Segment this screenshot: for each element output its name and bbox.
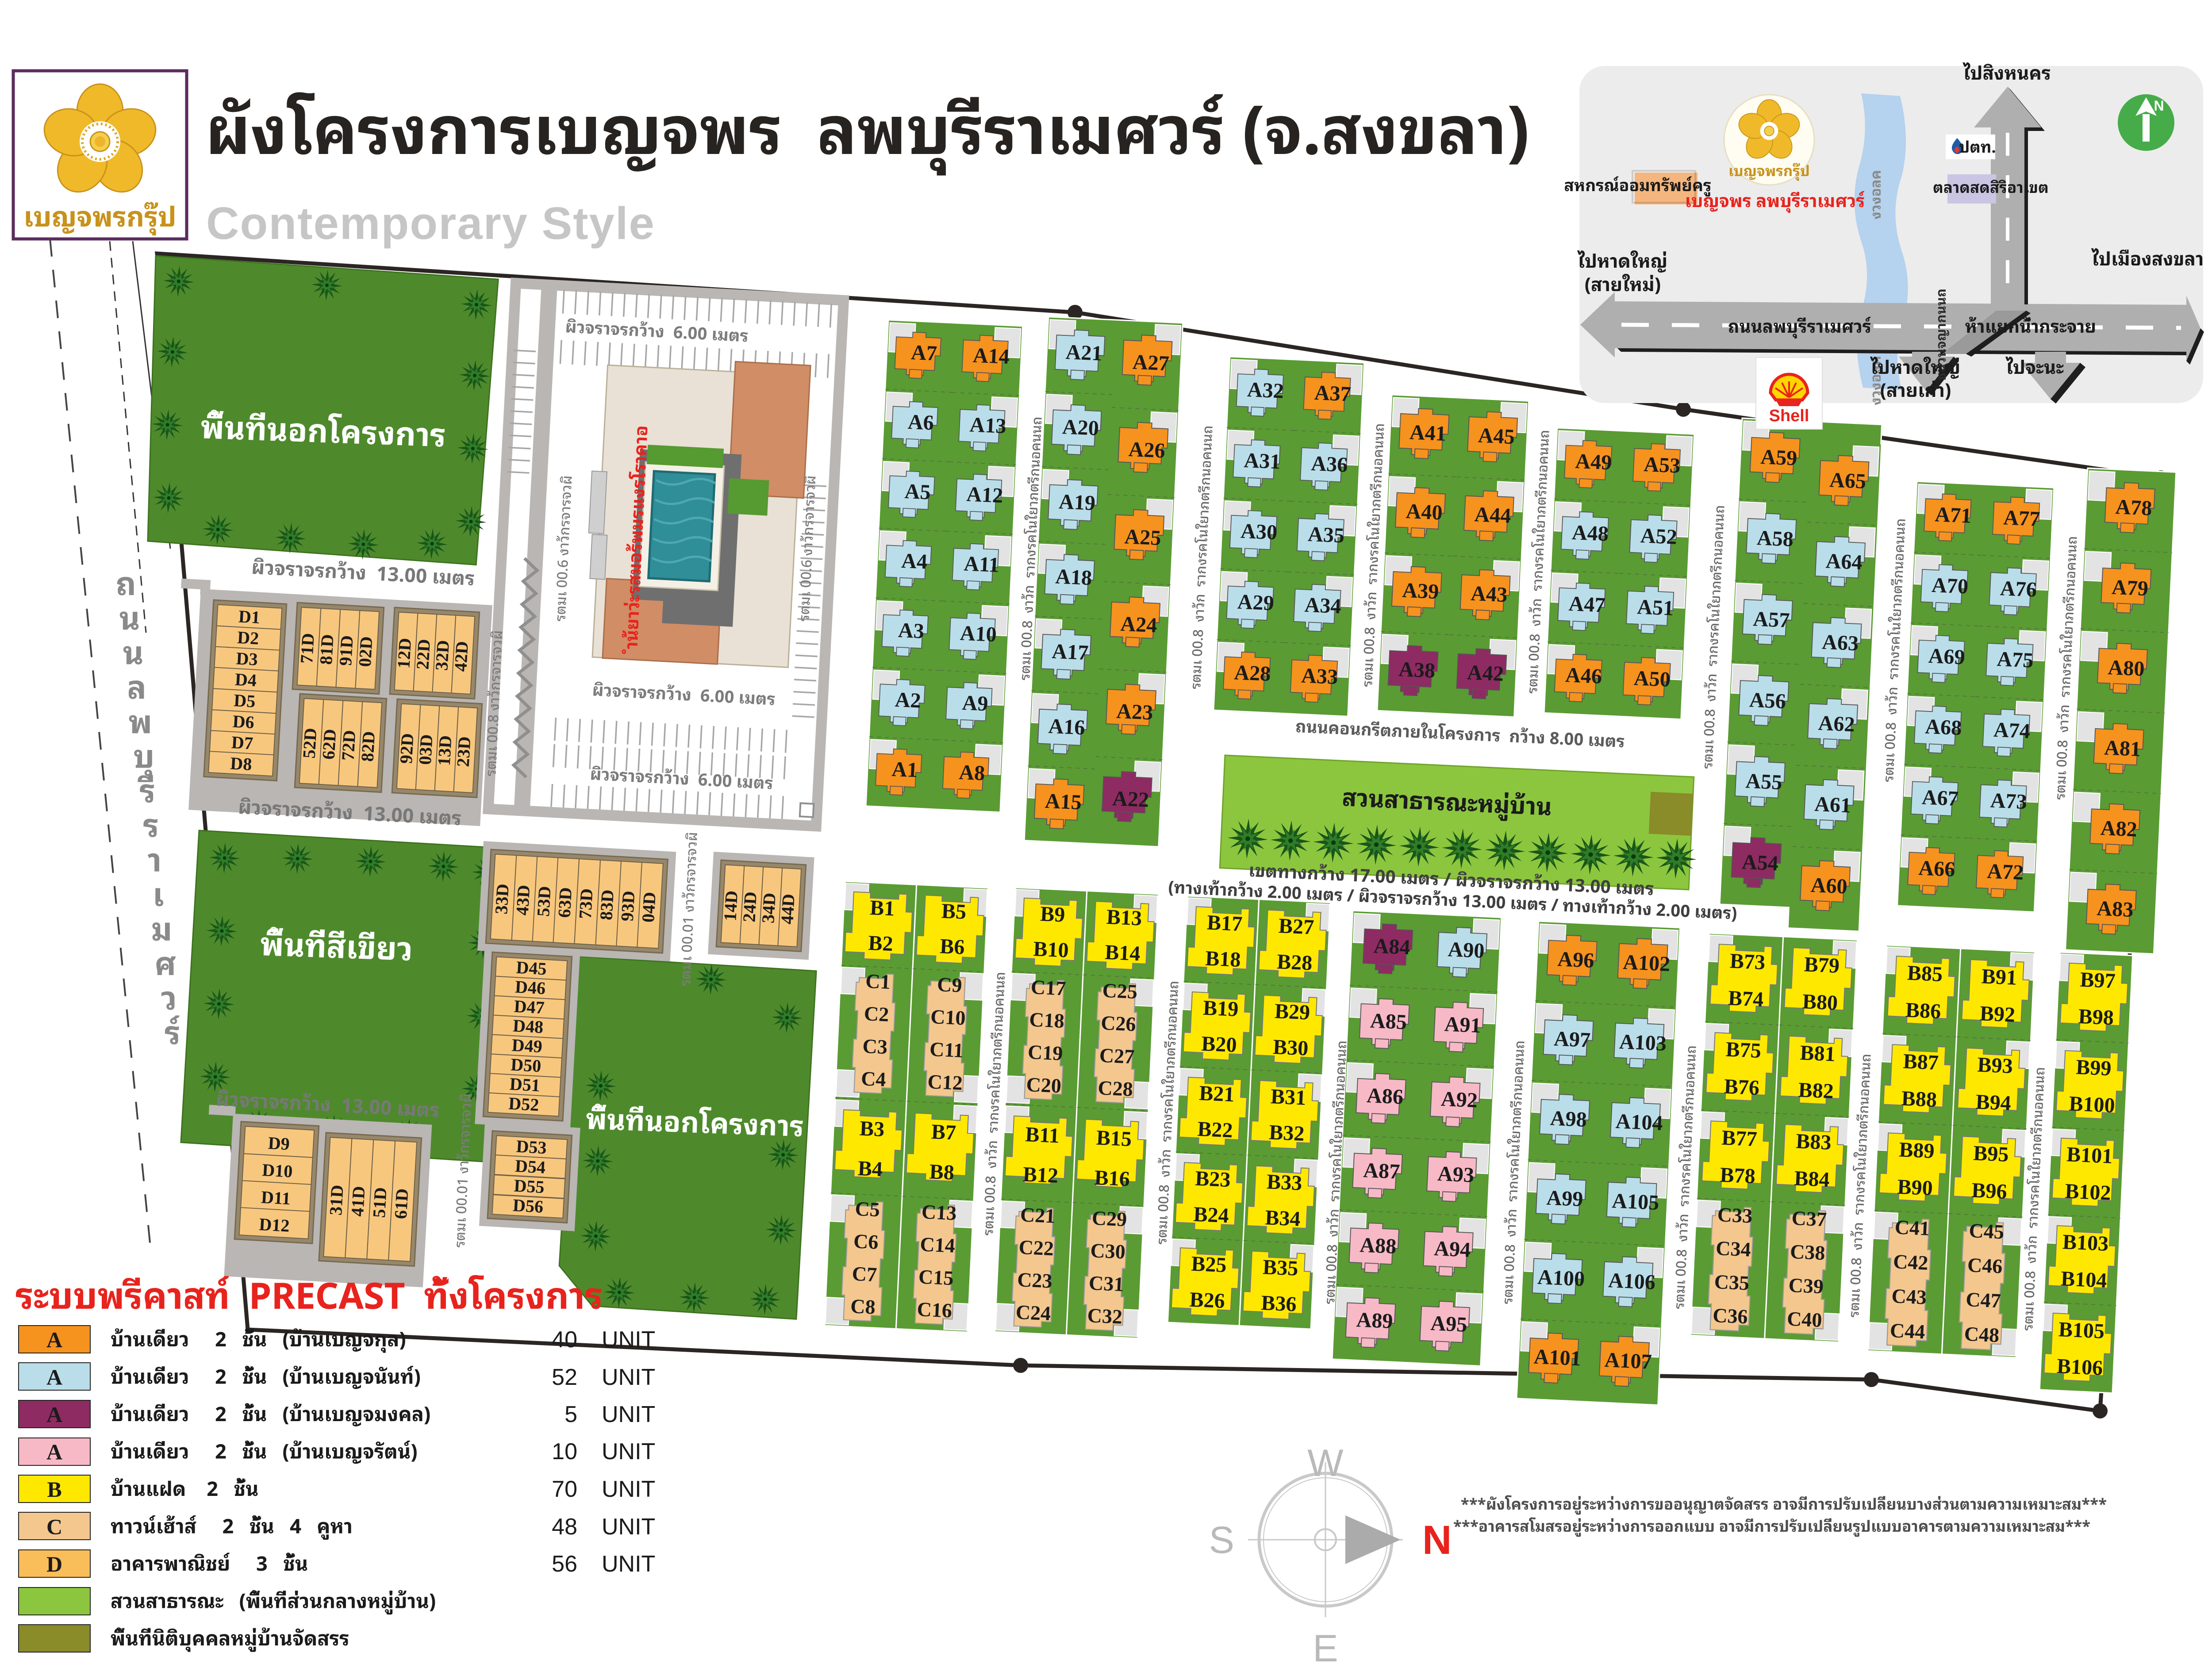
svg-text:C46: C46 [1967, 1253, 2003, 1278]
svg-text:C17: C17 [1030, 976, 1067, 1000]
svg-text:A4: A4 [901, 549, 928, 574]
svg-text:B3: B3 [859, 1117, 885, 1142]
svg-text:C28: C28 [1098, 1076, 1134, 1101]
svg-text:A12: A12 [966, 482, 1003, 507]
svg-text:B85: B85 [1907, 961, 1943, 986]
svg-text:UNIT: UNIT [602, 1551, 655, 1577]
svg-text:48: 48 [552, 1514, 577, 1540]
svg-text:D49: D49 [511, 1035, 543, 1057]
svg-text:62D: 62D [319, 728, 340, 760]
svg-text:D3: D3 [236, 648, 258, 669]
svg-text:C35: C35 [1714, 1270, 1750, 1295]
svg-text:C42: C42 [1893, 1250, 1929, 1274]
svg-text:N: N [1422, 1518, 1452, 1563]
svg-text:B88: B88 [1901, 1087, 1937, 1112]
svg-text:B106: B106 [2056, 1354, 2103, 1380]
svg-text:A7: A7 [910, 341, 937, 365]
svg-text:A2: A2 [895, 688, 922, 713]
svg-text:B28: B28 [1276, 950, 1313, 975]
svg-text:A20: A20 [1062, 415, 1099, 440]
svg-text:C4: C4 [860, 1067, 887, 1091]
svg-text:A23: A23 [1116, 700, 1153, 725]
svg-text:A85: A85 [1370, 1009, 1407, 1034]
svg-text:B83: B83 [1795, 1130, 1832, 1155]
svg-text:A62: A62 [1818, 711, 1855, 737]
svg-text:A65: A65 [1829, 468, 1866, 493]
svg-text:B74: B74 [1728, 986, 1764, 1011]
svg-text:A28: A28 [1233, 661, 1271, 686]
svg-text:A67: A67 [1921, 785, 1959, 811]
svg-text:A98: A98 [1550, 1107, 1587, 1132]
svg-text:C1: C1 [865, 969, 891, 993]
svg-text:14D: 14D [720, 890, 741, 922]
svg-text:C40: C40 [1786, 1307, 1823, 1332]
svg-text:B95: B95 [1973, 1142, 2009, 1167]
svg-text:B91: B91 [1981, 965, 2017, 990]
svg-text:A93: A93 [1437, 1162, 1475, 1187]
svg-text:C37: C37 [1791, 1207, 1828, 1231]
svg-text:A104: A104 [1615, 1110, 1663, 1135]
svg-text:B87: B87 [1903, 1049, 1939, 1075]
svg-text:B14: B14 [1104, 941, 1141, 966]
svg-text:C47: C47 [1965, 1288, 2001, 1312]
svg-text:A96: A96 [1557, 947, 1595, 972]
svg-text:A1: A1 [891, 757, 918, 782]
svg-text:C3: C3 [862, 1034, 888, 1058]
svg-text:A5: A5 [904, 480, 931, 504]
svg-text:UNIT: UNIT [602, 1476, 655, 1502]
svg-text:B6: B6 [939, 934, 965, 959]
svg-text:A38: A38 [1398, 657, 1436, 683]
svg-text:B25: B25 [1190, 1252, 1227, 1277]
svg-text:52D: 52D [299, 727, 321, 759]
svg-text:C48: C48 [1964, 1322, 2000, 1347]
svg-text:42D: 42D [450, 641, 472, 672]
svg-text:C7: C7 [852, 1262, 878, 1286]
svg-text:D45: D45 [515, 957, 547, 979]
svg-text:C33: C33 [1717, 1203, 1753, 1227]
svg-text:A83: A83 [2096, 896, 2134, 922]
svg-text:A17: A17 [1051, 639, 1089, 665]
svg-text:A78: A78 [2115, 495, 2152, 520]
svg-text:A42: A42 [1467, 661, 1504, 686]
svg-text:A27: A27 [1132, 350, 1170, 376]
svg-text:B32: B32 [1268, 1121, 1305, 1146]
svg-text:A92: A92 [1440, 1087, 1478, 1112]
svg-text:B5: B5 [941, 899, 967, 924]
svg-text:31D: 31D [326, 1184, 347, 1216]
svg-text:A39: A39 [1402, 578, 1440, 603]
svg-text:A95: A95 [1430, 1311, 1468, 1337]
svg-text:C41: C41 [1894, 1215, 1931, 1240]
svg-text:5: 5 [565, 1402, 577, 1427]
svg-text:B10: B10 [1033, 937, 1069, 962]
svg-text:A106: A106 [1608, 1268, 1656, 1294]
svg-text:A63: A63 [1821, 630, 1859, 655]
svg-text:A105: A105 [1611, 1189, 1659, 1215]
svg-text:12D: 12D [393, 638, 415, 669]
svg-text:A6: A6 [907, 410, 934, 435]
svg-text:B100: B100 [2068, 1092, 2115, 1118]
svg-text:A34: A34 [1304, 593, 1342, 618]
svg-text:C24: C24 [1015, 1301, 1052, 1325]
svg-text:A60: A60 [1810, 873, 1848, 899]
svg-text:B17: B17 [1206, 911, 1243, 936]
svg-text:A97: A97 [1553, 1027, 1591, 1052]
svg-text:B11: B11 [1025, 1122, 1060, 1148]
svg-text:53D: 53D [533, 885, 555, 917]
svg-text:Contemporary Style: Contemporary Style [206, 198, 655, 249]
svg-text:D1: D1 [238, 606, 261, 627]
svg-text:A36: A36 [1310, 452, 1348, 477]
svg-text:34D: 34D [758, 892, 780, 923]
svg-text:A35: A35 [1307, 523, 1345, 548]
svg-text:D46: D46 [515, 976, 546, 998]
svg-text:B77: B77 [1721, 1126, 1757, 1151]
svg-text:03D: 03D [415, 734, 437, 765]
svg-text:C14: C14 [919, 1233, 956, 1257]
svg-text:A94: A94 [1433, 1237, 1471, 1262]
svg-text:D50: D50 [510, 1054, 541, 1076]
svg-text:A33: A33 [1301, 664, 1338, 689]
svg-text:A18: A18 [1055, 565, 1092, 590]
svg-text:A11: A11 [963, 552, 999, 577]
svg-text:B12: B12 [1022, 1163, 1059, 1188]
svg-text:43D: 43D [512, 884, 534, 916]
svg-text:B22: B22 [1197, 1117, 1233, 1142]
svg-text:B27: B27 [1278, 914, 1314, 939]
svg-text:D47: D47 [514, 996, 545, 1018]
svg-text:B34: B34 [1264, 1206, 1301, 1231]
svg-text:A75: A75 [1997, 647, 2034, 673]
svg-text:A79: A79 [2111, 575, 2149, 600]
svg-text:D: D [46, 1552, 62, 1576]
svg-text:B35: B35 [1262, 1255, 1298, 1280]
svg-text:B101: B101 [2066, 1142, 2113, 1168]
svg-text:A76: A76 [2000, 577, 2037, 602]
svg-text:91D: 91D [335, 635, 357, 666]
svg-text:D7: D7 [231, 732, 253, 753]
svg-text:A: A [46, 1327, 62, 1352]
svg-text:C11: C11 [929, 1038, 964, 1061]
svg-text:B76: B76 [1724, 1075, 1760, 1100]
svg-text:C8: C8 [850, 1295, 876, 1318]
svg-text:C39: C39 [1788, 1274, 1824, 1298]
svg-text:A64: A64 [1825, 549, 1863, 574]
svg-text:22D: 22D [412, 638, 434, 670]
svg-text:56: 56 [552, 1551, 577, 1577]
svg-text:D11: D11 [261, 1187, 291, 1209]
svg-text:B94: B94 [1975, 1090, 2012, 1115]
svg-text:A77: A77 [2003, 506, 2040, 531]
svg-text:C20: C20 [1026, 1073, 1062, 1097]
svg-text:B26: B26 [1189, 1288, 1225, 1313]
svg-text:UNIT: UNIT [602, 1327, 655, 1353]
svg-text:B93: B93 [1977, 1053, 2013, 1078]
svg-text:B9: B9 [1040, 902, 1065, 927]
svg-text:B105: B105 [2058, 1318, 2105, 1343]
svg-text:B30: B30 [1272, 1035, 1309, 1061]
svg-text:A16: A16 [1048, 715, 1086, 740]
svg-text:A37: A37 [1314, 381, 1352, 406]
svg-text:A68: A68 [1924, 715, 1962, 740]
svg-text:A13: A13 [969, 413, 1007, 438]
svg-text:A102: A102 [1622, 950, 1671, 976]
svg-text:32D: 32D [431, 639, 453, 671]
svg-text:A74: A74 [1993, 718, 2031, 743]
svg-text:C: C [46, 1514, 62, 1539]
svg-text:C43: C43 [1891, 1284, 1928, 1309]
svg-text:52: 52 [552, 1365, 577, 1390]
svg-text:81D: 81D [316, 634, 338, 665]
svg-text:D4: D4 [234, 669, 257, 691]
svg-text:A19: A19 [1058, 490, 1096, 515]
svg-text:D54: D54 [515, 1156, 546, 1177]
svg-text:A82: A82 [2100, 816, 2138, 842]
svg-text:C5: C5 [855, 1197, 881, 1221]
svg-text:A100: A100 [1537, 1265, 1585, 1291]
svg-text:61D: 61D [391, 1188, 412, 1219]
svg-text:A61: A61 [1814, 792, 1851, 818]
svg-text:B84: B84 [1793, 1167, 1830, 1192]
svg-text:71D: 71D [296, 633, 318, 664]
svg-text:A57: A57 [1752, 607, 1790, 632]
svg-text:B99: B99 [2075, 1055, 2112, 1080]
svg-text:B: B [47, 1477, 61, 1502]
svg-text:B92: B92 [1979, 1002, 2016, 1027]
svg-text:C2: C2 [864, 1002, 890, 1026]
svg-text:C18: C18 [1029, 1008, 1065, 1032]
svg-text:B36: B36 [1260, 1291, 1297, 1316]
svg-text:A24: A24 [1120, 612, 1158, 637]
svg-text:A31: A31 [1244, 449, 1281, 474]
svg-text:04D: 04D [638, 892, 660, 923]
svg-text:A86: A86 [1366, 1084, 1404, 1109]
svg-text:A10: A10 [960, 621, 997, 646]
svg-text:D52: D52 [508, 1093, 539, 1115]
svg-text:A59: A59 [1760, 445, 1797, 470]
svg-text:B21: B21 [1198, 1081, 1235, 1107]
svg-text:A40: A40 [1406, 500, 1443, 525]
svg-text:B79: B79 [1804, 953, 1840, 978]
svg-text:A81: A81 [2104, 736, 2141, 761]
svg-text:A103: A103 [1619, 1030, 1667, 1056]
svg-text:W: W [1307, 1442, 1343, 1484]
svg-text:A84: A84 [1373, 934, 1411, 959]
svg-text:41D: 41D [347, 1185, 369, 1217]
svg-text:C10: C10 [930, 1005, 966, 1030]
svg-text:UNIT: UNIT [602, 1439, 655, 1464]
svg-text:C36: C36 [1712, 1304, 1748, 1328]
svg-text:C45: C45 [1969, 1219, 2005, 1243]
svg-text:A45: A45 [1478, 423, 1515, 449]
svg-text:B104: B104 [2060, 1267, 2107, 1292]
svg-text:Shell: Shell [1769, 407, 1809, 425]
svg-text:33D: 33D [491, 883, 513, 915]
svg-text:A107: A107 [1604, 1348, 1652, 1374]
svg-text:92D: 92D [396, 733, 418, 764]
svg-text:A90: A90 [1448, 938, 1485, 963]
svg-text:B18: B18 [1205, 946, 1241, 972]
svg-text:B16: B16 [1094, 1166, 1130, 1191]
svg-text:A73: A73 [1990, 788, 2028, 814]
svg-text:A80: A80 [2108, 656, 2145, 681]
svg-text:A53: A53 [1643, 453, 1681, 478]
svg-text:40: 40 [552, 1327, 577, 1353]
svg-text:D9: D9 [268, 1133, 290, 1154]
svg-text:93D: 93D [617, 890, 639, 922]
svg-text:B13: B13 [1106, 905, 1142, 930]
svg-text:A88: A88 [1359, 1233, 1397, 1258]
svg-text:C38: C38 [1790, 1240, 1826, 1265]
svg-text:A32: A32 [1247, 378, 1284, 403]
svg-text:A99: A99 [1546, 1186, 1584, 1211]
svg-text:B19: B19 [1202, 996, 1239, 1021]
svg-text:C19: C19 [1027, 1041, 1064, 1065]
svg-text:B29: B29 [1274, 999, 1310, 1025]
svg-text:C34: C34 [1715, 1237, 1751, 1261]
svg-text:C13: C13 [921, 1200, 957, 1225]
svg-text:D56: D56 [512, 1195, 544, 1217]
svg-text:B1: B1 [869, 896, 895, 921]
svg-text:D12: D12 [258, 1214, 290, 1236]
svg-text:C25: C25 [1102, 979, 1138, 1003]
svg-text:B98: B98 [2078, 1005, 2114, 1030]
svg-text:D5: D5 [233, 690, 256, 711]
svg-text:13D: 13D [434, 735, 456, 766]
svg-text:D2: D2 [237, 627, 259, 649]
svg-text:B82: B82 [1798, 1078, 1834, 1103]
svg-text:B33: B33 [1266, 1170, 1302, 1195]
svg-text:B103: B103 [2062, 1230, 2109, 1256]
svg-text:A47: A47 [1568, 592, 1606, 617]
svg-text:A91: A91 [1444, 1012, 1482, 1038]
svg-text:A: A [46, 1402, 62, 1427]
svg-text:S: S [1209, 1519, 1234, 1561]
svg-text:B23: B23 [1194, 1167, 1231, 1192]
svg-text:23D: 23D [453, 736, 475, 767]
svg-text:D55: D55 [514, 1176, 545, 1197]
svg-text:C21: C21 [1020, 1203, 1056, 1227]
svg-text:A: A [46, 1440, 62, 1464]
svg-text:C27: C27 [1099, 1044, 1135, 1068]
svg-text:A69: A69 [1928, 644, 1966, 669]
svg-text:73D: 73D [575, 888, 597, 919]
svg-text:63D: 63D [554, 887, 576, 918]
svg-text:C6: C6 [853, 1230, 879, 1253]
svg-text:A58: A58 [1756, 526, 1794, 551]
svg-text:C32: C32 [1087, 1304, 1123, 1328]
svg-text:A72: A72 [1986, 859, 2024, 884]
svg-text:C26: C26 [1100, 1011, 1137, 1036]
svg-text:44D: 44D [777, 893, 799, 925]
svg-text:C16: C16 [917, 1298, 953, 1322]
svg-text:B73: B73 [1729, 949, 1766, 974]
svg-text:UNIT: UNIT [602, 1365, 655, 1390]
svg-text:A14: A14 [972, 343, 1010, 369]
svg-text:A52: A52 [1640, 524, 1678, 549]
svg-text:A22: A22 [1112, 787, 1149, 812]
svg-text:A51: A51 [1636, 595, 1674, 620]
svg-text:A21: A21 [1065, 340, 1103, 365]
svg-text:A9: A9 [962, 691, 989, 716]
svg-text:D10: D10 [261, 1160, 293, 1181]
svg-text:B81: B81 [1799, 1041, 1836, 1066]
svg-text:C23: C23 [1017, 1268, 1053, 1292]
svg-text:A46: A46 [1565, 663, 1602, 688]
svg-text:A89: A89 [1356, 1308, 1394, 1333]
svg-text:B86: B86 [1905, 998, 1941, 1023]
svg-text:A50: A50 [1633, 666, 1671, 692]
svg-text:A54: A54 [1741, 850, 1779, 876]
svg-text:B102: B102 [2064, 1180, 2111, 1205]
svg-text:A26: A26 [1128, 438, 1166, 463]
svg-text:A43: A43 [1470, 582, 1508, 607]
svg-text:A: A [46, 1365, 62, 1390]
svg-text:A49: A49 [1575, 450, 1613, 475]
svg-text:72D: 72D [338, 730, 359, 761]
svg-text:A29: A29 [1237, 590, 1275, 615]
svg-text:B31: B31 [1270, 1085, 1306, 1110]
svg-text:B20: B20 [1201, 1032, 1237, 1057]
svg-text:A66: A66 [1918, 856, 1956, 881]
svg-text:A3: A3 [898, 619, 925, 643]
svg-text:B90: B90 [1897, 1175, 1933, 1200]
svg-text:A41: A41 [1409, 420, 1447, 446]
svg-text:51D: 51D [369, 1187, 391, 1218]
svg-text:B4: B4 [857, 1157, 883, 1181]
svg-text:A15: A15 [1045, 789, 1082, 815]
svg-text:B7: B7 [931, 1120, 956, 1145]
svg-text:A71: A71 [1935, 503, 1972, 528]
svg-text:B97: B97 [2079, 968, 2116, 993]
svg-text:C9: C9 [937, 973, 963, 997]
svg-text:UNIT: UNIT [602, 1514, 655, 1540]
svg-text:A8: A8 [958, 761, 985, 785]
svg-text:A55: A55 [1745, 769, 1783, 794]
svg-text:A56: A56 [1749, 688, 1786, 713]
svg-text:D48: D48 [512, 1015, 544, 1037]
svg-text:B78: B78 [1720, 1163, 1756, 1188]
svg-text:B75: B75 [1725, 1038, 1762, 1063]
svg-text:B15: B15 [1096, 1126, 1132, 1151]
svg-text:C31: C31 [1088, 1272, 1125, 1296]
svg-text:82D: 82D [357, 730, 379, 762]
svg-text:C44: C44 [1889, 1319, 1926, 1343]
svg-text:UNIT: UNIT [602, 1402, 655, 1427]
svg-text:B80: B80 [1802, 990, 1838, 1015]
svg-text:N: N [2154, 98, 2164, 114]
svg-text:A48: A48 [1571, 521, 1609, 546]
svg-text:C22: C22 [1018, 1236, 1055, 1260]
svg-text:83D: 83D [596, 889, 618, 920]
svg-text:D51: D51 [509, 1074, 541, 1095]
svg-text:24D: 24D [739, 891, 760, 922]
svg-text:A70: A70 [1931, 573, 1969, 599]
svg-text:A25: A25 [1124, 525, 1162, 550]
svg-text:D53: D53 [515, 1136, 547, 1158]
svg-text:C30: C30 [1090, 1239, 1126, 1263]
svg-text:10: 10 [552, 1439, 577, 1464]
svg-text:B8: B8 [929, 1160, 955, 1185]
svg-text:E: E [1313, 1627, 1338, 1670]
svg-text:B89: B89 [1898, 1138, 1935, 1163]
svg-text:B2: B2 [868, 931, 893, 956]
svg-text:C12: C12 [927, 1070, 964, 1095]
svg-text:70: 70 [552, 1476, 577, 1502]
svg-text:B24: B24 [1193, 1203, 1229, 1228]
svg-text:C29: C29 [1091, 1207, 1128, 1231]
